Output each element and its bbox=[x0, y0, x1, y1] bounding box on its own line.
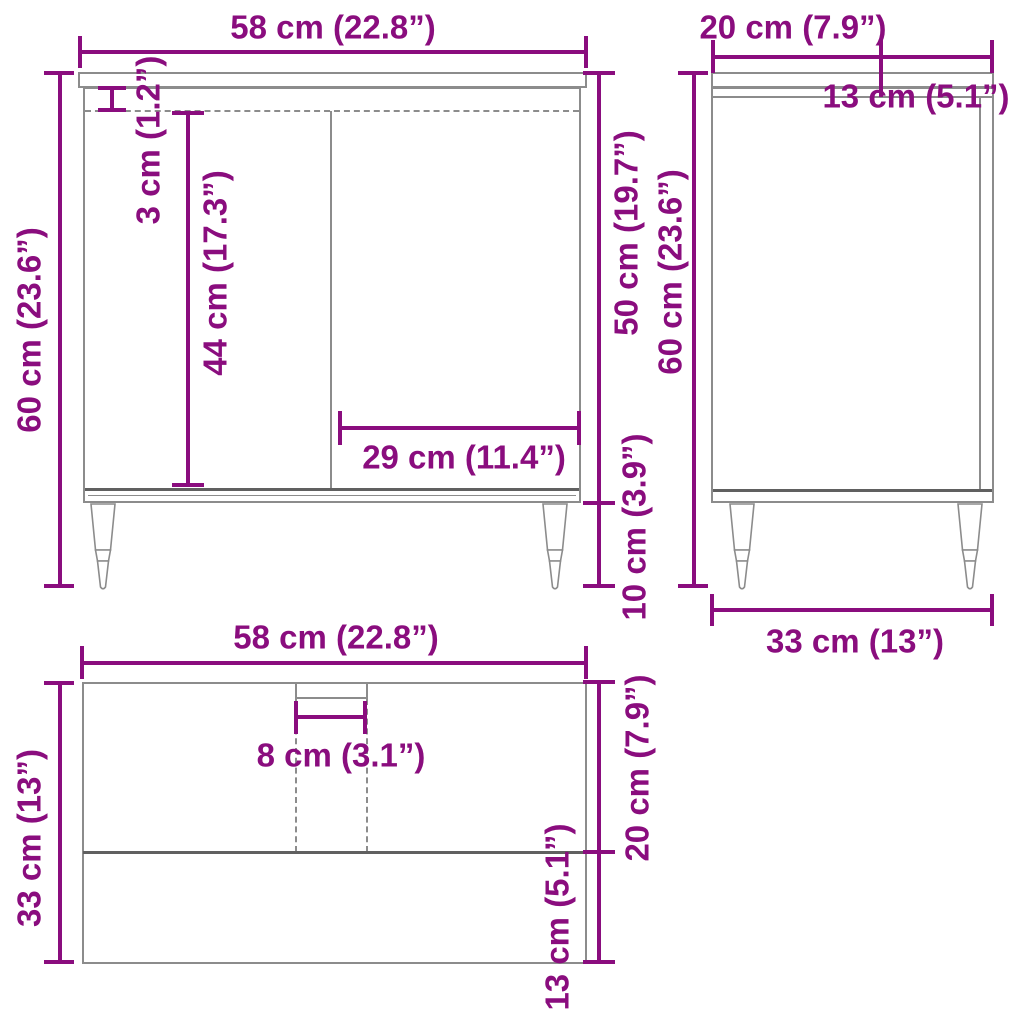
side-height-dim-tick-top bbox=[678, 71, 708, 75]
front-top-rail-label: 3 cm (1.2”) bbox=[132, 56, 165, 225]
front-door-height-label: 44 cm (17.3”) bbox=[199, 170, 232, 375]
front-door-width-label: 29 cm (11.4”) bbox=[362, 441, 566, 474]
side-height-dim-tick-bottom bbox=[678, 584, 708, 588]
side-base-depth-dim-line bbox=[712, 608, 994, 612]
top-notch-width-dim-tick-left bbox=[294, 701, 298, 734]
front-leg-height-dim-line bbox=[597, 503, 601, 588]
side-base-depth-dim-tick-right bbox=[990, 594, 994, 626]
front-body-height-label: 50 cm (19.7”) bbox=[610, 130, 643, 335]
front-door-bottom-edge bbox=[85, 488, 579, 491]
side-base-depth-dim-tick-left bbox=[710, 594, 714, 626]
front-door-height-dim-tick-top bbox=[172, 111, 204, 115]
front-leg-height-label: 10 cm (3.9”) bbox=[618, 433, 651, 620]
front-leg-height-dim-tick-bottom bbox=[583, 584, 615, 588]
side-back-panel-line bbox=[979, 97, 981, 489]
side-top-back-depth-label: 13 cm (5.1”) bbox=[822, 80, 1009, 113]
front-width-dim-line bbox=[80, 50, 587, 54]
front-width-dim-tick-right bbox=[584, 36, 588, 68]
front-left-leg bbox=[88, 503, 118, 591]
top-notch-width-dim-tick-right bbox=[363, 701, 367, 734]
top-width-dim-line bbox=[82, 661, 587, 665]
top-depth-dim-tick-top bbox=[44, 681, 74, 685]
top-width-dim-tick-right bbox=[584, 646, 588, 679]
top-notch-right-edge bbox=[366, 682, 368, 698]
side-height-dim-line bbox=[692, 73, 696, 588]
front-top-rail-dim-tick-bottom bbox=[98, 108, 126, 112]
side-body bbox=[711, 87, 994, 503]
top-notch-width-dim-line bbox=[296, 715, 367, 719]
front-width-dim-tick-left bbox=[78, 36, 82, 68]
front-right-leg bbox=[540, 503, 570, 591]
top-width-label: 58 cm (22.8”) bbox=[233, 621, 438, 654]
side-front-leg bbox=[727, 503, 757, 591]
front-door-divider bbox=[330, 111, 332, 489]
top-front-depth-label: 20 cm (7.9”) bbox=[621, 674, 654, 861]
front-height-dim-line bbox=[58, 73, 62, 588]
top-notch-width-label: 8 cm (3.1”) bbox=[257, 739, 426, 772]
top-depth-dim-tick-bottom bbox=[44, 960, 74, 964]
side-base-depth-label: 33 cm (13”) bbox=[766, 625, 944, 658]
top-back-depth-label: 13 cm (5.1”) bbox=[541, 823, 574, 1010]
side-top-depth-dim-tick-right bbox=[990, 40, 994, 73]
diagram-canvas: 58 cm (22.8”) 60 cm (23.6”) 3 cm (1.2”) … bbox=[0, 0, 1024, 1024]
front-door-width-dim-tick-right bbox=[577, 411, 581, 445]
side-bottom-edge bbox=[713, 489, 992, 492]
side-top-depth-dim-line bbox=[713, 55, 994, 59]
side-back-leg bbox=[955, 503, 985, 591]
front-plinth-edge bbox=[88, 495, 576, 496]
top-depth-dim-line bbox=[58, 683, 62, 964]
top-section-dim-tick-top bbox=[583, 680, 615, 684]
front-body-height-dim-tick-top bbox=[583, 71, 615, 75]
side-top-depth-label: 20 cm (7.9”) bbox=[699, 11, 886, 44]
front-height-label: 60 cm (23.6”) bbox=[13, 227, 46, 432]
top-section-dim-tick-bottom bbox=[583, 960, 615, 964]
front-width-label: 58 cm (22.8”) bbox=[230, 11, 435, 44]
front-top-rail-dim-tick-top bbox=[98, 86, 126, 90]
front-door-width-dim-tick-left bbox=[338, 411, 342, 445]
top-section-dim-line bbox=[597, 682, 601, 964]
front-door-width-dim-line bbox=[340, 426, 580, 430]
top-outline bbox=[82, 682, 587, 964]
top-notch-bottom-edge bbox=[295, 697, 368, 699]
front-body-height-dim-line bbox=[597, 73, 601, 503]
top-notch-left-edge bbox=[295, 682, 297, 698]
front-height-dim-tick-top bbox=[44, 71, 74, 75]
front-door-height-dim-tick-bottom bbox=[172, 483, 204, 487]
front-door-height-dim-line bbox=[186, 113, 190, 487]
top-depth-label: 33 cm (13”) bbox=[13, 749, 46, 927]
side-height-label: 60 cm (23.6”) bbox=[654, 169, 687, 374]
top-section-divider bbox=[83, 851, 586, 854]
top-width-dim-tick-left bbox=[80, 646, 84, 679]
top-section-dim-tick-middle bbox=[583, 850, 615, 854]
front-height-dim-tick-bottom bbox=[44, 584, 74, 588]
